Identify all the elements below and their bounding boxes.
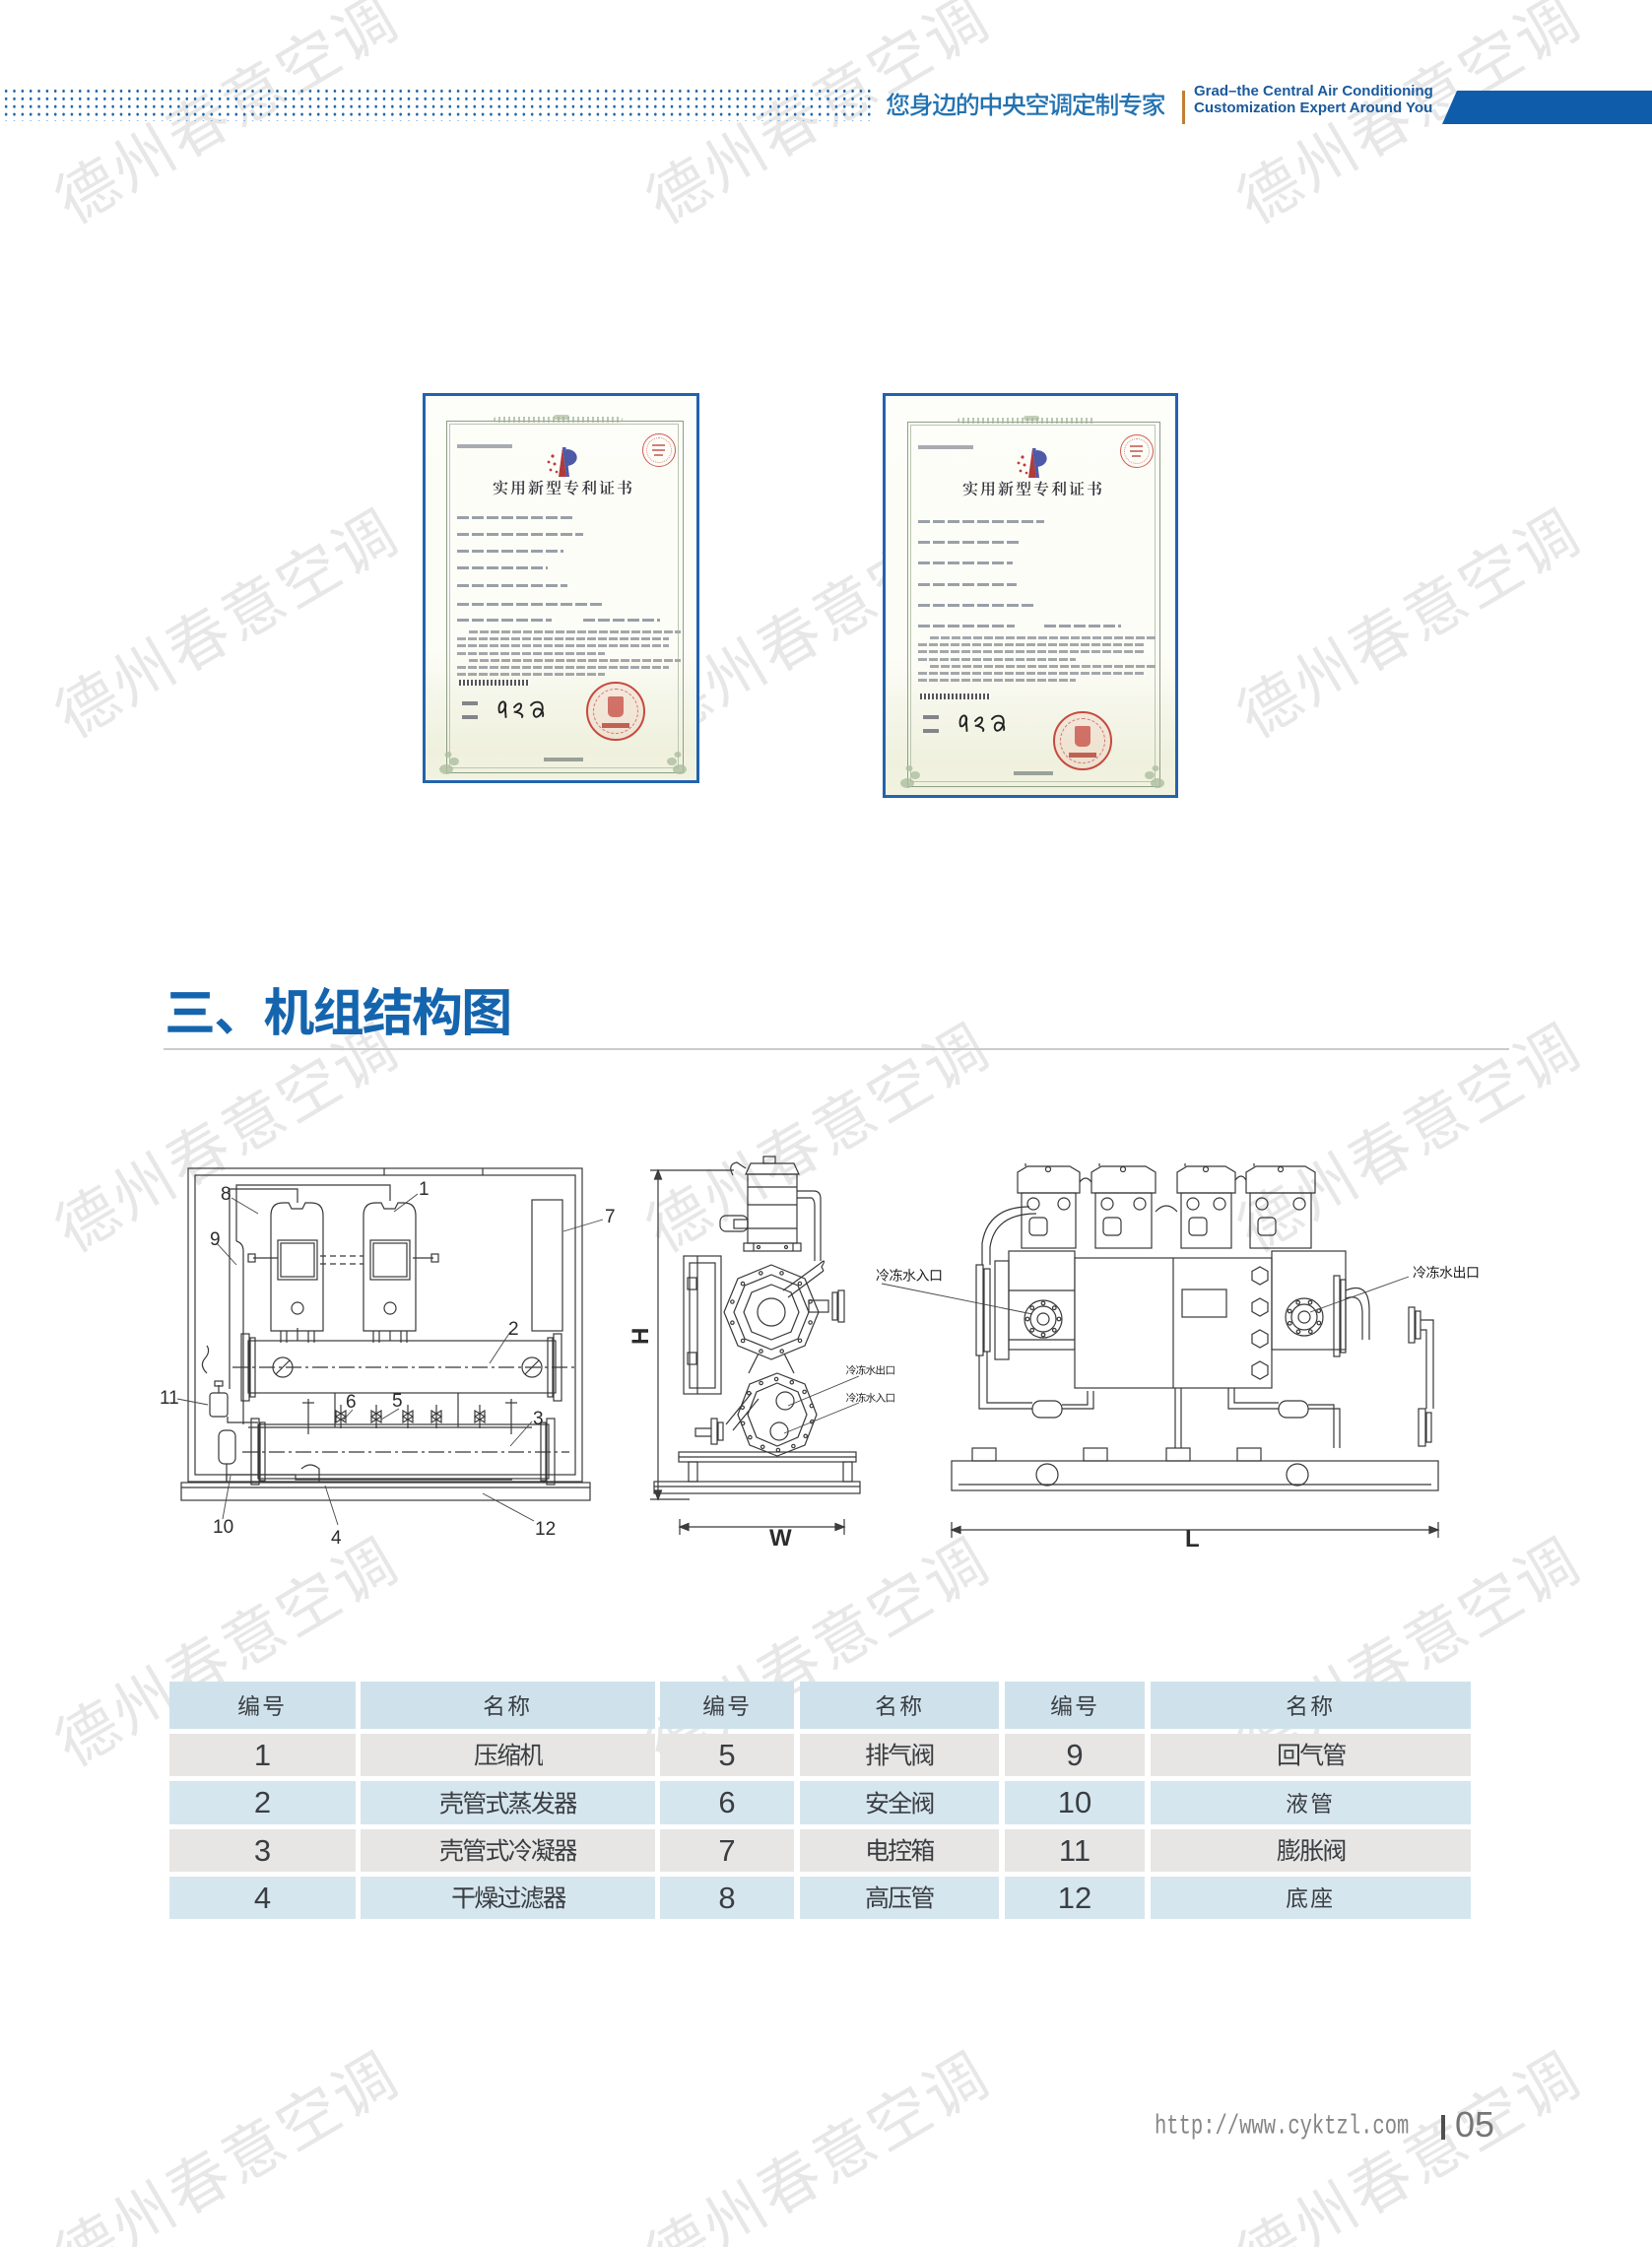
svg-text:9: 9 <box>210 1229 221 1250</box>
svg-text:12: 12 <box>535 1519 556 1540</box>
svg-text:L: L <box>1185 1526 1200 1553</box>
svg-text:11: 11 <box>160 1388 179 1409</box>
svg-text:7: 7 <box>605 1207 616 1227</box>
svg-text:H: H <box>628 1328 654 1345</box>
svg-text:5: 5 <box>392 1391 403 1412</box>
svg-text:W: W <box>769 1525 792 1552</box>
svg-text:6: 6 <box>346 1392 357 1413</box>
svg-text:2: 2 <box>508 1319 519 1340</box>
svg-text:10: 10 <box>213 1517 233 1538</box>
svg-text:1: 1 <box>419 1179 430 1200</box>
svg-text:3: 3 <box>533 1409 544 1429</box>
svg-text:8: 8 <box>221 1184 231 1205</box>
svg-text:4: 4 <box>331 1528 342 1549</box>
